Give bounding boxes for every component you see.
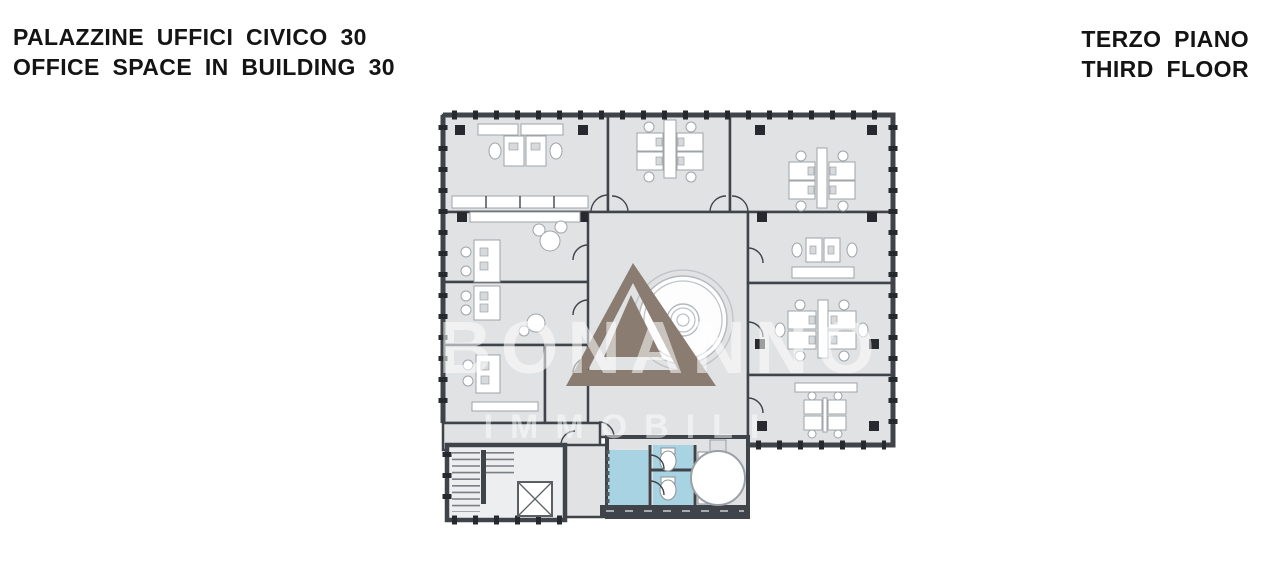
watermark-subtitle: IMMOBILI <box>484 408 777 446</box>
page: PALAZZINE UFFICI CIVICO 30 OFFICE SPACE … <box>0 0 1281 567</box>
watermark-brand: BONANNO <box>438 306 883 389</box>
floor-plan: BONANNO IMMOBILI <box>0 0 1281 567</box>
elevator <box>518 482 552 516</box>
